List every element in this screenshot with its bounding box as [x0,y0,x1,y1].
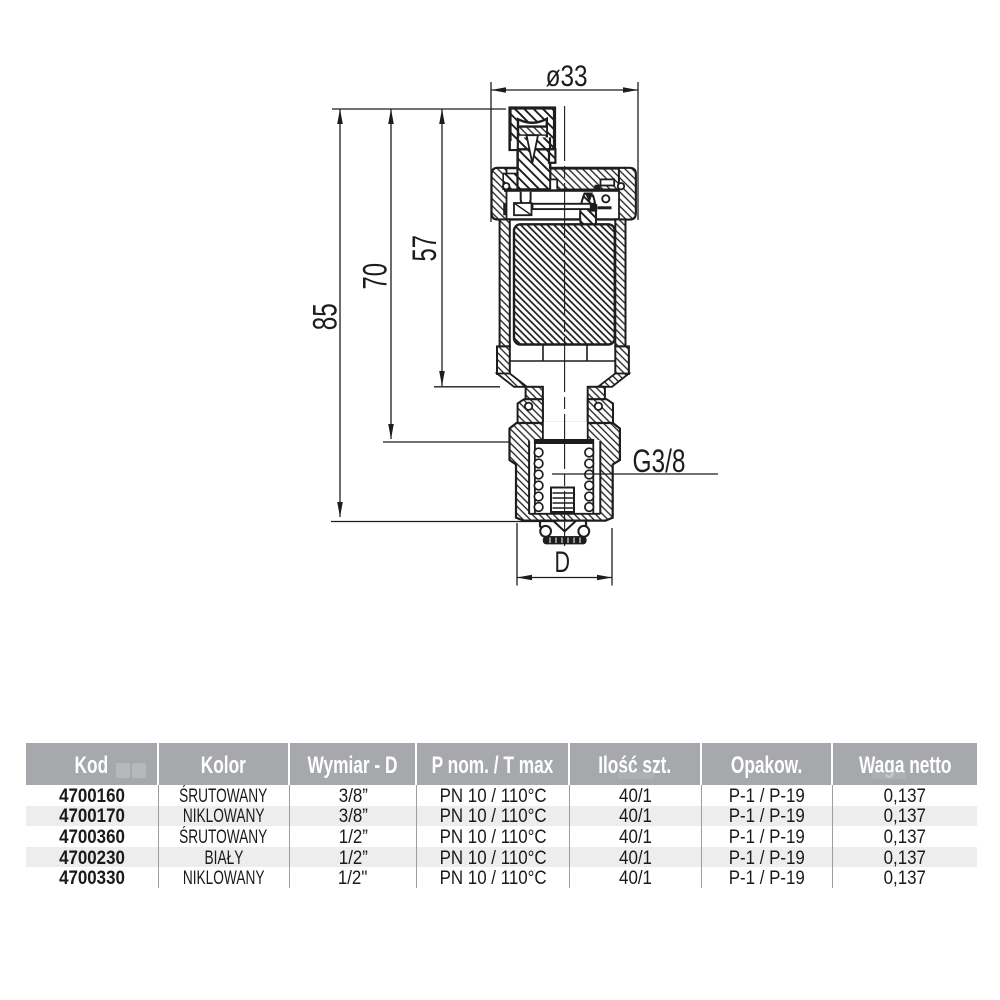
svg-text:D: D [555,546,571,579]
svg-text:G3/8: G3/8 [633,443,686,479]
svg-text:ø33: ø33 [546,60,588,93]
svg-text:70: 70 [357,263,395,290]
svg-text:85: 85 [307,303,345,330]
svg-text:57: 57 [406,235,444,262]
